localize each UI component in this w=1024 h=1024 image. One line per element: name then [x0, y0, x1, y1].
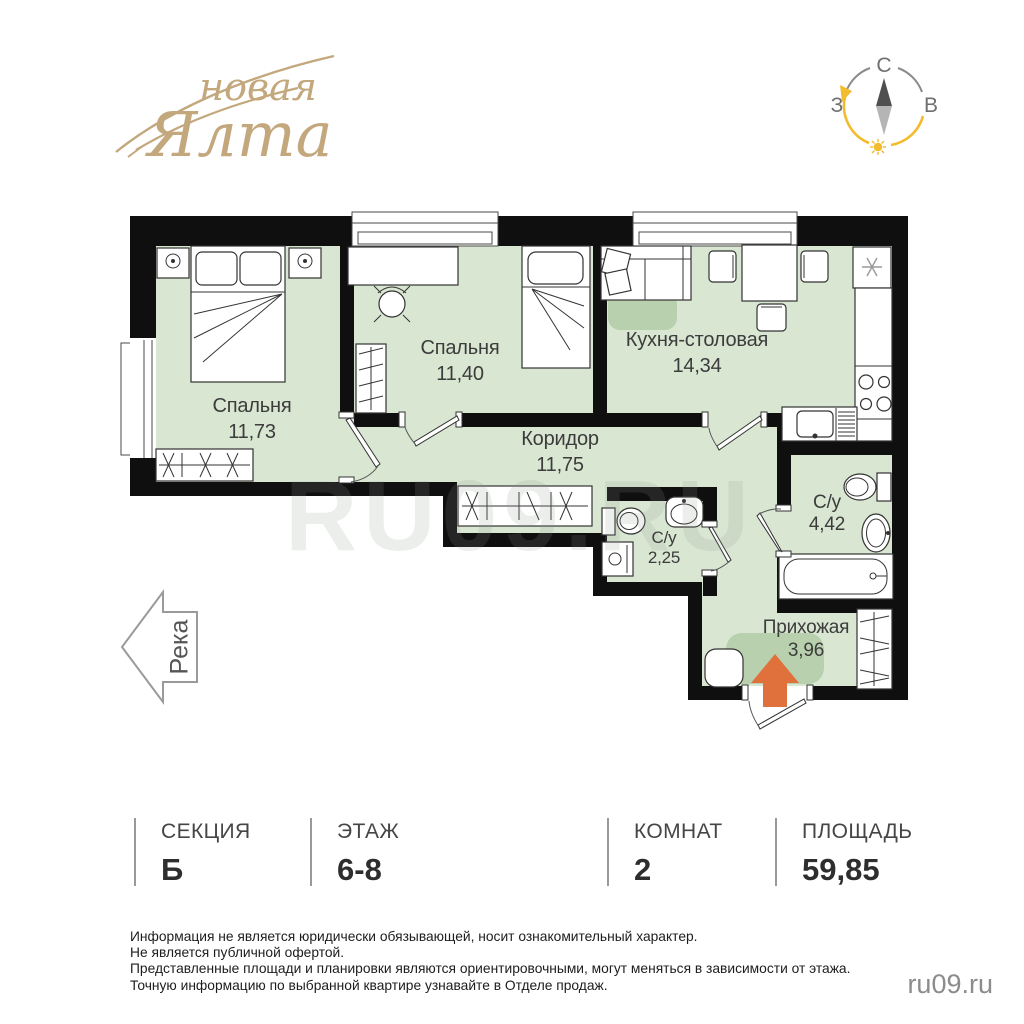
wardrobe-icon — [156, 449, 253, 481]
room-label-bedroom2: Спальня — [421, 337, 500, 359]
floorplan-flyer: новая Ялта С З В Река — [0, 0, 1024, 1024]
summary-area: ПЛОЩАДЬ 59,85 — [775, 818, 962, 886]
compass-needle-icon — [876, 78, 892, 135]
room-label-entry: Прихожая — [763, 617, 849, 638]
plan-watermark: RU09.RU — [285, 460, 755, 572]
toilet-icon — [844, 473, 891, 501]
floor-plan: RU09.RU Спальня 11,73 Спальня 11,40 Кухн… — [121, 212, 908, 729]
sofa-icon — [601, 246, 691, 300]
room-area-wc-small: 2,25 — [648, 548, 680, 567]
single-bed-icon — [522, 246, 590, 368]
river-direction-arrow: Река — [122, 592, 197, 702]
wardrobe-icon — [857, 609, 892, 689]
disclaimer: Информация не является юридически обязыв… — [130, 929, 860, 994]
room-area-bedroom2: 11,40 — [436, 363, 484, 385]
summary-area-value: 59,85 — [802, 854, 962, 885]
summary-section: СЕКЦИЯ Б — [134, 818, 321, 886]
chair-icon — [801, 251, 828, 282]
compass-north-label: С — [876, 54, 891, 77]
dining-table-icon — [742, 245, 797, 301]
compass-east-label: В — [924, 94, 938, 117]
double-bed-icon — [191, 246, 285, 382]
desk-chair-icon — [374, 286, 410, 322]
room-label-wc-small: С/у — [652, 528, 678, 547]
wardrobe-icon — [356, 344, 386, 413]
river-label: Река — [166, 619, 194, 674]
summary-bar: СЕКЦИЯ Б ЭТАЖ 6-8 КОМНАТ 2 ПЛОЩАДЬ 59,85 — [0, 818, 1024, 890]
room-label-bedroom1: Спальня — [213, 395, 292, 417]
room-area-kitchen: 14,34 — [672, 355, 721, 377]
sun-icon — [870, 139, 886, 155]
disclaimer-line: Представленные площади и планировки явля… — [130, 961, 860, 977]
room-label-wc-big: С/у — [813, 492, 842, 513]
nightstand-icon — [289, 248, 321, 278]
window-icon-bedroom2 — [352, 212, 498, 246]
compass-rose: С З В — [831, 54, 938, 155]
fridge-icon — [853, 247, 891, 288]
summary-area-label: ПЛОЩАДЬ — [802, 821, 962, 842]
room-label-kitchen: Кухня-столовая — [626, 329, 768, 351]
room-area-bedroom1: 11,73 — [228, 421, 276, 443]
site-watermark: ru09.ru — [907, 969, 993, 1000]
summary-section-label: СЕКЦИЯ — [161, 821, 321, 842]
desk-icon — [348, 247, 458, 285]
kitchen-counter-icon — [855, 288, 892, 441]
logo-word-2: Ялта — [144, 98, 332, 171]
summary-rooms-label: КОМНАТ — [634, 821, 774, 842]
window-icon-kitchen — [633, 212, 797, 246]
compass-west-label: З — [831, 94, 844, 117]
sink-icon — [862, 514, 890, 552]
summary-floor-label: ЭТАЖ — [337, 821, 607, 842]
sun-path-arc — [891, 116, 923, 145]
window-icon-bedroom1 — [121, 338, 156, 458]
summary-floor-value: 6-8 — [337, 854, 607, 885]
brand-logo: новая Ялта — [116, 56, 334, 171]
disclaimer-line: Информация не является юридически обязыв… — [130, 929, 860, 945]
summary-rooms-value: 2 — [634, 854, 774, 885]
room-label-corridor: Коридор — [521, 428, 599, 450]
pouf-icon — [705, 649, 743, 687]
room-area-wc-big: 4,42 — [809, 514, 845, 535]
nightstand-icon — [157, 248, 189, 278]
disclaimer-line: Точную информацию по выбранной квартире … — [130, 978, 860, 994]
disclaimer-line: Не является публичной офертой. — [130, 945, 860, 961]
summary-rooms: КОМНАТ 2 — [607, 818, 774, 886]
sun-arrowhead — [840, 85, 852, 102]
summary-section-value: Б — [161, 854, 321, 885]
kitchen-sink-icon — [782, 407, 857, 441]
room-area-entry: 3,96 — [788, 640, 824, 661]
chair-icon — [757, 304, 786, 331]
room-area-corridor: 11,75 — [536, 454, 584, 476]
bathtub-icon — [779, 554, 893, 599]
summary-floor: ЭТАЖ 6-8 — [310, 818, 607, 886]
chair-icon — [709, 251, 736, 282]
